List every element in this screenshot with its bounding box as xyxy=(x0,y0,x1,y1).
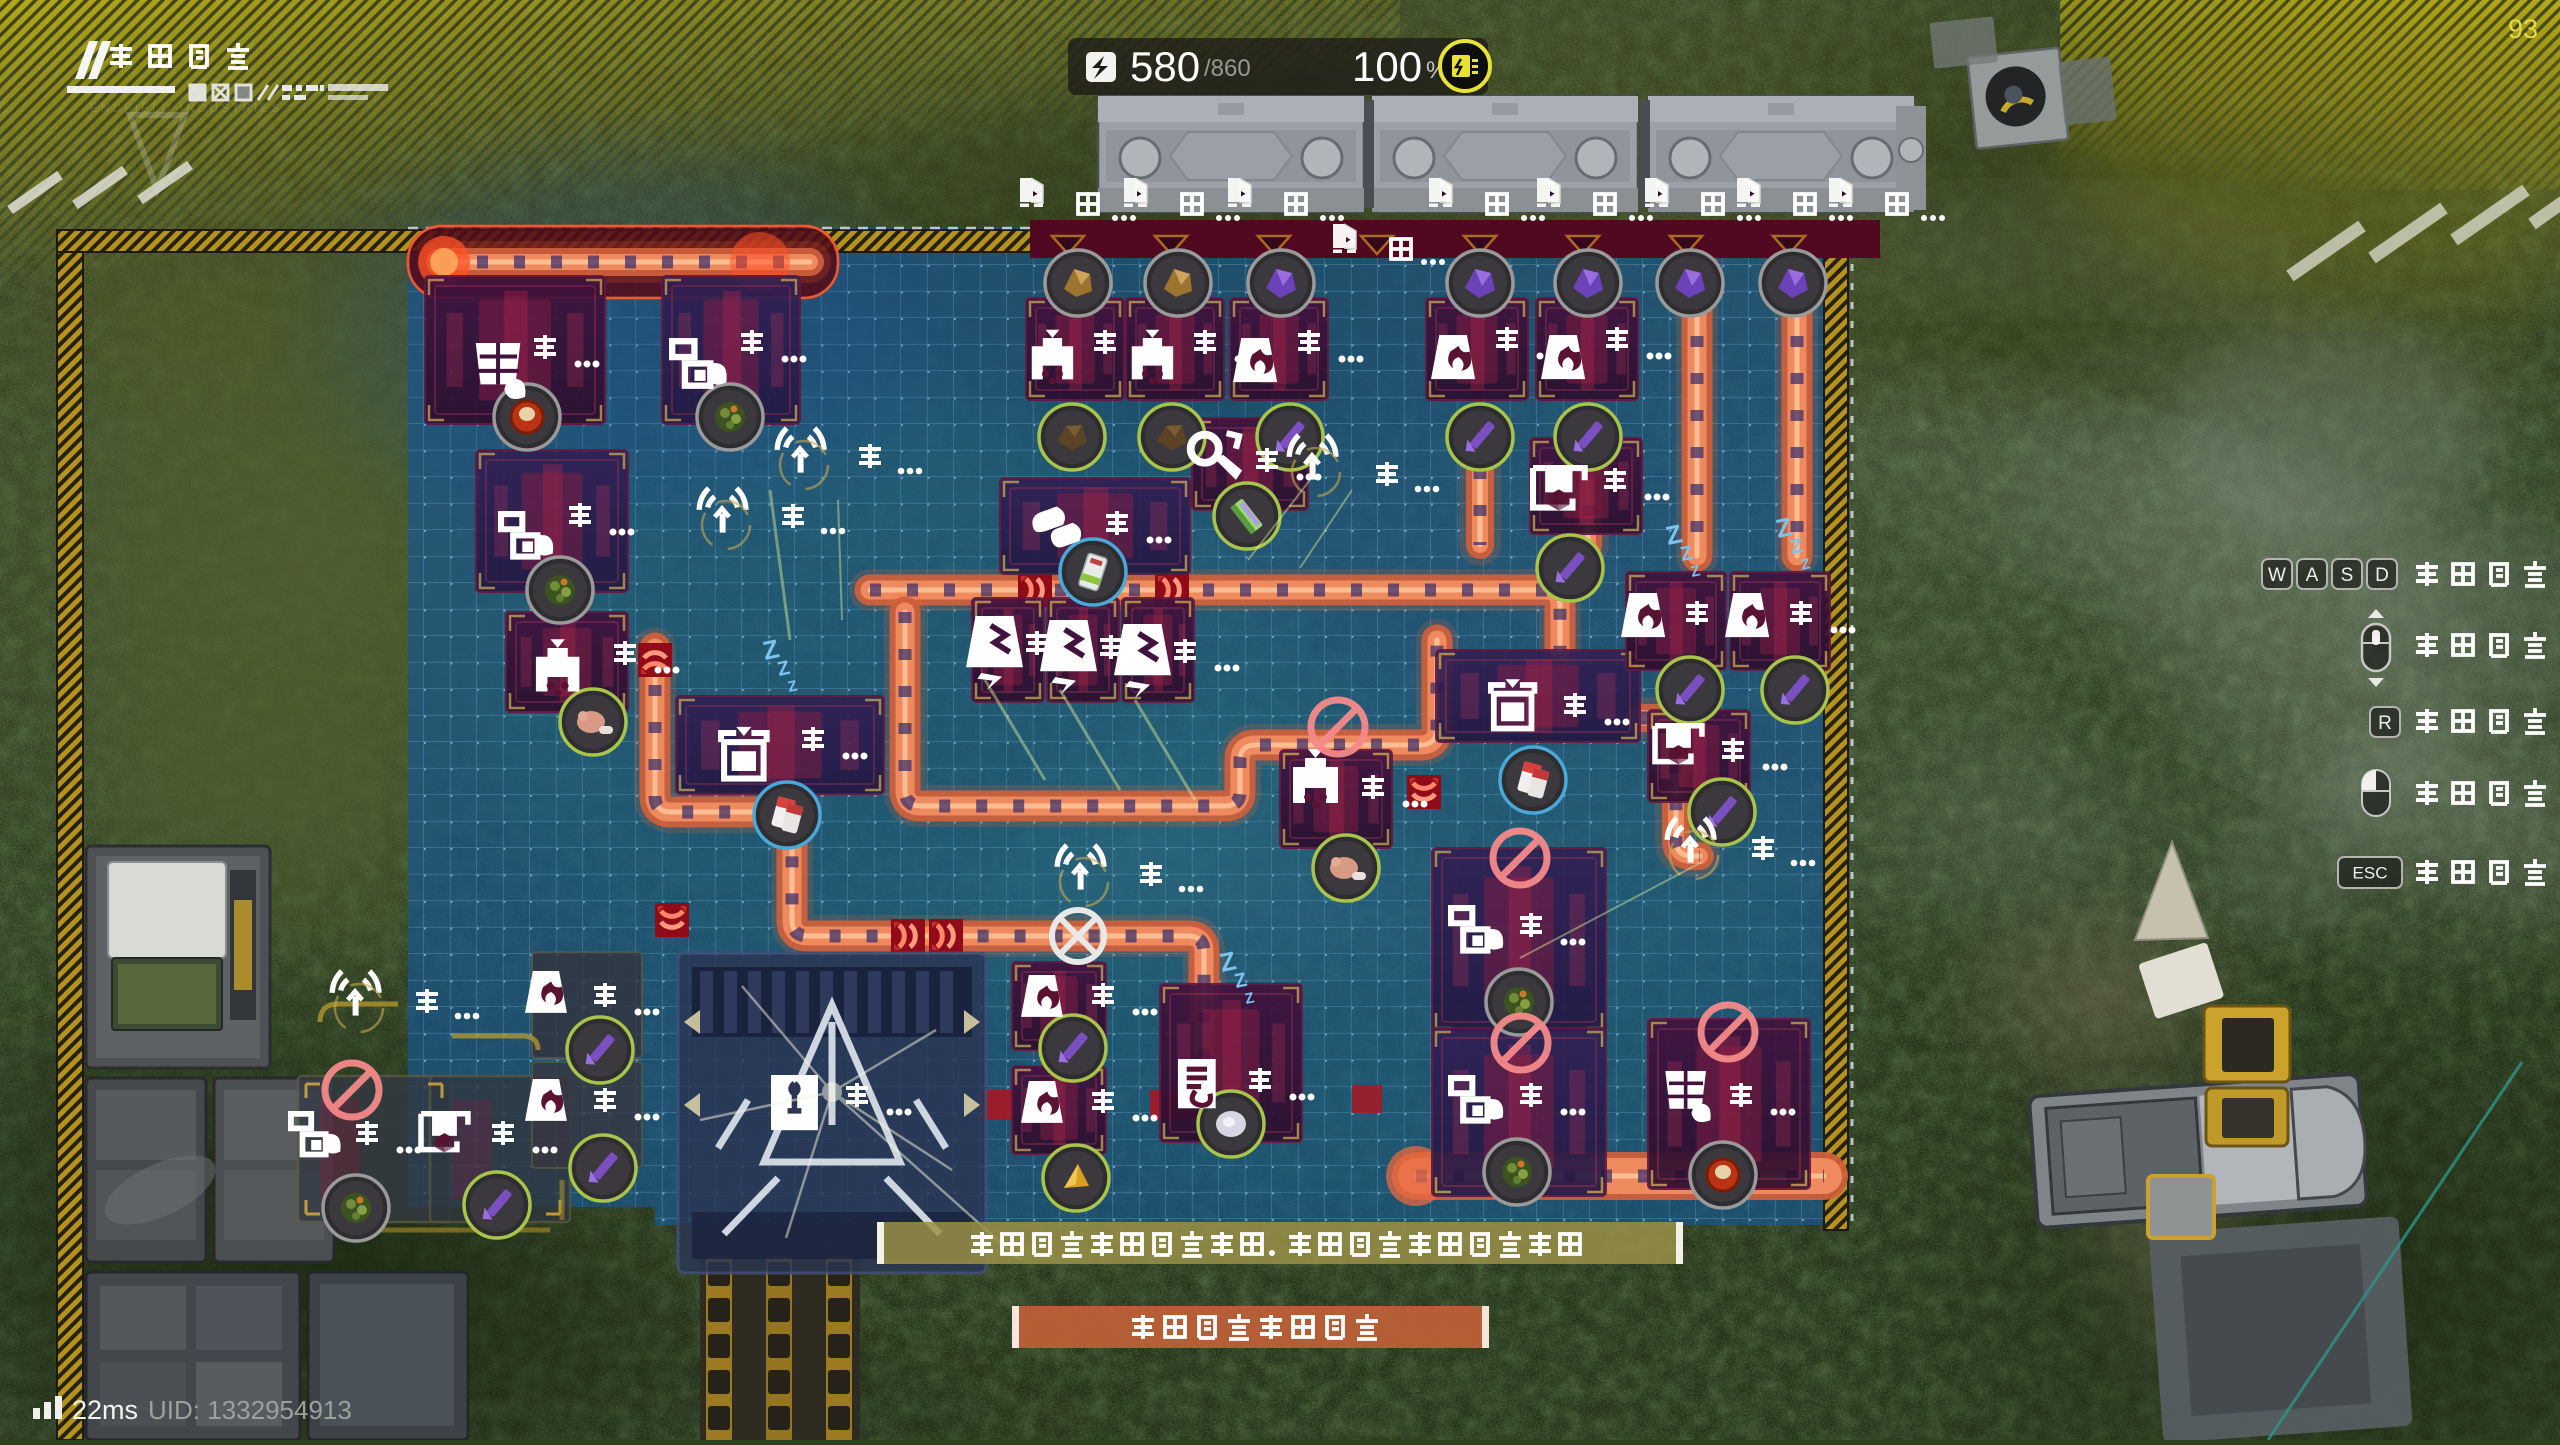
svg-text:R: R xyxy=(2378,713,2392,734)
svg-text:W: W xyxy=(2268,565,2286,586)
svg-text:93: 93 xyxy=(2508,14,2538,44)
svg-text:UID: 1332954913: UID: 1332954913 xyxy=(148,1395,352,1425)
svg-text:ESC: ESC xyxy=(2353,864,2388,883)
svg-text:580: 580 xyxy=(1130,43,1200,90)
svg-text:100: 100 xyxy=(1352,43,1422,90)
svg-text:S: S xyxy=(2341,565,2354,586)
svg-text:ENDFIELD INDUSTRIES: ENDFIELD INDUSTRIES xyxy=(90,101,282,115)
svg-text:22ms: 22ms xyxy=(72,1395,138,1425)
svg-text:D: D xyxy=(2375,565,2389,586)
svg-text:A: A xyxy=(2306,565,2319,586)
svg-text:/860: /860 xyxy=(1204,55,1251,82)
